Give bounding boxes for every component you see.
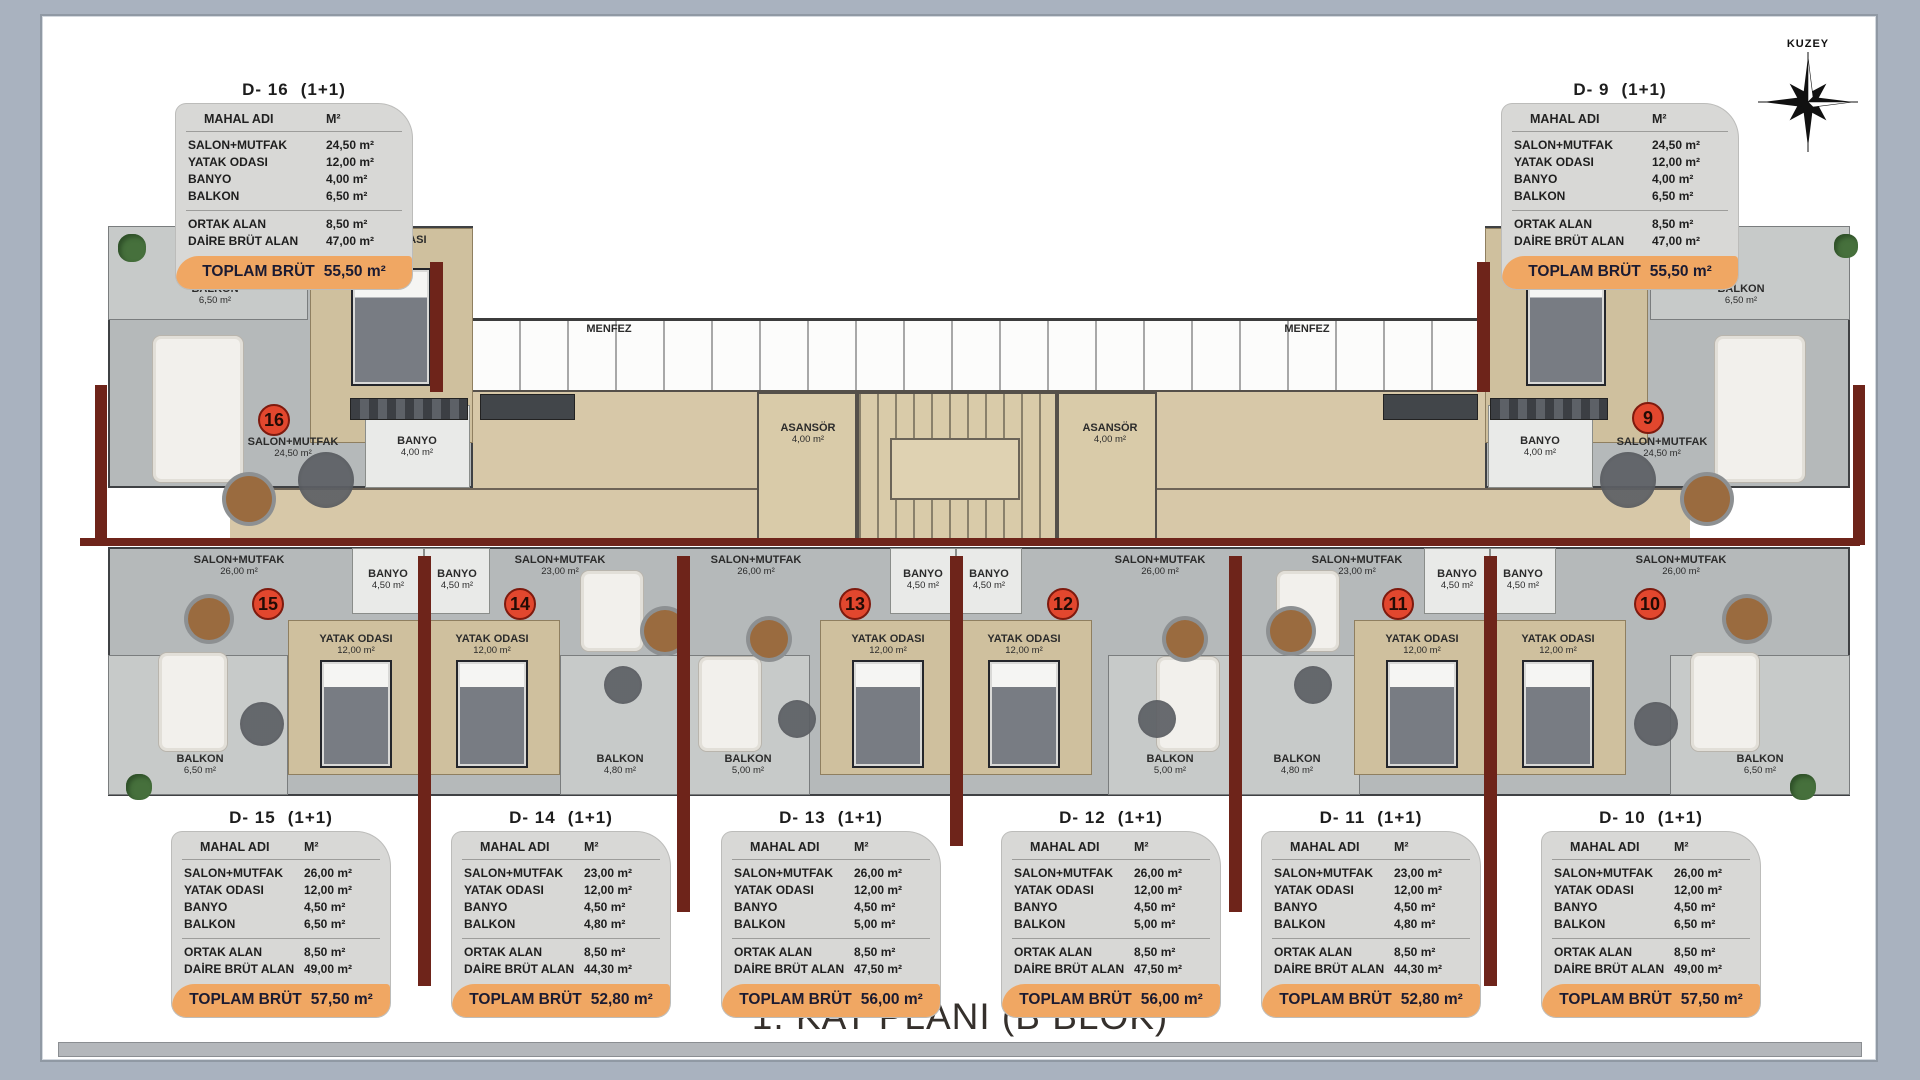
- room-label-salon-mutfak: SALON+MUTFAK26,00 m²: [1636, 555, 1727, 577]
- room-label-yatak-odasi: YATAK ODASI12,00 m²: [455, 634, 528, 656]
- room-row: BANYO4,50 m²: [1002, 899, 1220, 916]
- room-name: YATAK ODASI: [1521, 634, 1594, 646]
- room-row: BANYO4,00 m²: [176, 171, 412, 188]
- room-row: BALKON6,50 m²: [176, 188, 412, 205]
- room-name: BALKON: [1273, 754, 1320, 766]
- bed-icon: [988, 660, 1060, 768]
- unit-card-d12: D- 12(1+1) MAHAL ADIM² SALON+MUTFAK26,00…: [1002, 808, 1220, 1017]
- room-area: 6,50 m²: [176, 766, 223, 776]
- unit-type: (1+1): [288, 808, 333, 827]
- room-row: BALKON4,80 m²: [1262, 916, 1480, 933]
- bed-icon: [1522, 660, 1594, 768]
- unit-number-10: 10: [1634, 588, 1666, 620]
- room-label-yatak-odasi: YATAK ODASI12,00 m²: [319, 634, 392, 656]
- footer-bar: [58, 1042, 1862, 1057]
- summary-row: DAİRE BRÜT ALAN47,50 m²: [722, 961, 940, 978]
- unit-id: D- 10: [1599, 808, 1646, 827]
- room-area: 4,00 m²: [780, 435, 835, 445]
- room-label-balkon: BALKON5,00 m²: [724, 754, 771, 776]
- unit-type: (1+1): [1658, 808, 1703, 827]
- room-area: 6,50 m²: [191, 296, 238, 306]
- structural-wall: [950, 556, 963, 846]
- room-area: 4,50 m²: [1437, 581, 1477, 591]
- unit-number-13: 13: [839, 588, 871, 620]
- room-name: BALKON: [176, 754, 223, 766]
- room-label-balkon: BALKON6,50 m²: [1736, 754, 1783, 776]
- table-icon: [1684, 476, 1730, 522]
- room-name: BALKON: [596, 754, 643, 766]
- unit-card-title: D- 11(1+1): [1262, 808, 1480, 828]
- room-name: BANYO: [397, 436, 437, 448]
- room-row: SALON+MUTFAK24,50 m²: [176, 137, 412, 154]
- room-name: BANYO: [437, 569, 477, 581]
- card-header: MAHAL ADIM²: [722, 832, 940, 857]
- room-name: MENFEZ: [586, 324, 631, 336]
- unit-id: D- 16: [242, 80, 289, 99]
- room-row: SALON+MUTFAK26,00 m²: [172, 865, 390, 882]
- unit-card-d13: D- 13(1+1) MAHAL ADIM² SALON+MUTFAK26,00…: [722, 808, 940, 1017]
- unit-type: (1+1): [1377, 808, 1422, 827]
- total-band: TOPLAM BRÜT52,80 m²: [1262, 984, 1480, 1017]
- room-row: SALON+MUTFAK26,00 m²: [1002, 865, 1220, 882]
- room-area: 4,00 m²: [1082, 435, 1137, 445]
- sofa-icon: [158, 652, 228, 752]
- sofa-icon: [698, 656, 762, 752]
- unit-number-9: 9: [1632, 402, 1664, 434]
- sofa-icon: [152, 335, 244, 483]
- summary-row: ORTAK ALAN8,50 m²: [722, 944, 940, 961]
- room-area: 4,80 m²: [596, 766, 643, 776]
- room-label-banyo: BANYO4,00 m²: [1520, 436, 1560, 458]
- room-name: BANYO: [368, 569, 408, 581]
- unit-id: D- 9: [1573, 80, 1609, 99]
- room-row: BANYO4,50 m²: [722, 899, 940, 916]
- room-label-salon-mutfak: SALON+MUTFAK24,50 m²: [248, 437, 339, 459]
- room-area: 4,50 m²: [969, 581, 1009, 591]
- room-label-salon-mutfak: SALON+MUTFAK26,00 m²: [711, 555, 802, 577]
- room-row: SALON+MUTFAK23,00 m²: [452, 865, 670, 882]
- room-label-balkon: BALKON4,80 m²: [1273, 754, 1320, 776]
- table-icon: [750, 620, 788, 658]
- room-row: SALON+MUTFAK24,50 m²: [1502, 137, 1738, 154]
- wardrobe-icon: [350, 398, 468, 420]
- room-row: YATAK ODASI12,00 m²: [1502, 154, 1738, 171]
- room-label-balkon: BALKON6,50 m²: [176, 754, 223, 776]
- room-name: SALON+MUTFAK: [1312, 555, 1403, 567]
- summary-row: DAİRE BRÜT ALAN49,00 m²: [172, 961, 390, 978]
- room-row: BALKON5,00 m²: [1002, 916, 1220, 933]
- bed-icon: [1386, 660, 1458, 768]
- unit-card-d14: D- 14(1+1) MAHAL ADIM² SALON+MUTFAK23,00…: [452, 808, 670, 1017]
- rug-icon: [1138, 700, 1176, 738]
- table-icon: [1726, 598, 1768, 640]
- unit-card-title: D- 16(1+1): [176, 80, 412, 100]
- room-area: 12,00 m²: [1521, 646, 1594, 656]
- summary-row: ORTAK ALAN8,50 m²: [1002, 944, 1220, 961]
- card-header: MAHAL ADIM²: [1262, 832, 1480, 857]
- room-name: BALKON: [1736, 754, 1783, 766]
- room-row: BANYO4,50 m²: [1262, 899, 1480, 916]
- unit-type: (1+1): [1621, 80, 1666, 99]
- plant-icon: [1790, 774, 1816, 800]
- unit-type: (1+1): [301, 80, 346, 99]
- room-label-salon-mutfak: SALON+MUTFAK23,00 m²: [1312, 555, 1403, 577]
- card-header: MAHAL ADIM²: [452, 832, 670, 857]
- structural-wall: [1853, 385, 1865, 545]
- summary-row: ORTAK ALAN8,50 m²: [1262, 944, 1480, 961]
- room-label-salon-mutfak: SALON+MUTFAK26,00 m²: [1115, 555, 1206, 577]
- summary-row: DAİRE BRÜT ALAN47,50 m²: [1002, 961, 1220, 978]
- room-label-balkon: BALKON5,00 m²: [1146, 754, 1193, 776]
- room-row: YATAK ODASI12,00 m²: [1262, 882, 1480, 899]
- unit-number-12: 12: [1047, 588, 1079, 620]
- room-label-salon-mutfak: SALON+MUTFAK26,00 m²: [194, 555, 285, 577]
- unit-type: (1+1): [838, 808, 883, 827]
- room-name: YATAK ODASI: [851, 634, 924, 646]
- room-row: YATAK ODASI12,00 m²: [176, 154, 412, 171]
- unit-id: D- 15: [229, 808, 276, 827]
- room-row: BALKON6,50 m²: [172, 916, 390, 933]
- room-area: 26,00 m²: [711, 567, 802, 577]
- room-name: BALKON: [1146, 754, 1193, 766]
- room-name: ASANSÖR: [780, 423, 835, 435]
- room-name: YATAK ODASI: [319, 634, 392, 646]
- unit-card-title: D- 9(1+1): [1502, 80, 1738, 100]
- room-label-salon-mutfak: SALON+MUTFAK23,00 m²: [515, 555, 606, 577]
- room-area: 26,00 m²: [1636, 567, 1727, 577]
- room-name: SALON+MUTFAK: [194, 555, 285, 567]
- room-label-banyo: BANYO4,50 m²: [1503, 569, 1543, 591]
- unit-id: D- 11: [1320, 808, 1366, 827]
- room-row: BALKON5,00 m²: [722, 916, 940, 933]
- total-band: TOPLAM BRÜT55,50 m²: [176, 256, 412, 289]
- room-row: SALON+MUTFAK23,00 m²: [1262, 865, 1480, 882]
- unit-type: (1+1): [568, 808, 613, 827]
- room-area: 4,50 m²: [903, 581, 943, 591]
- summary-row: ORTAK ALAN8,50 m²: [1542, 944, 1760, 961]
- room-label-asans-r: ASANSÖR4,00 m²: [780, 423, 835, 445]
- room-name: YATAK ODASI: [987, 634, 1060, 646]
- unit-card-d16: D- 16(1+1) MAHAL ADIM² SALON+MUTFAK24,50…: [176, 80, 412, 289]
- plant-icon: [118, 234, 146, 262]
- bed-icon: [456, 660, 528, 768]
- compass-north-label: KUZEY: [1752, 38, 1864, 50]
- summary-row: DAİRE BRÜT ALAN44,30 m²: [1262, 961, 1480, 978]
- room-area: 6,50 m²: [1717, 296, 1764, 306]
- structural-wall: [430, 262, 443, 392]
- room-name: YATAK ODASI: [455, 634, 528, 646]
- room-label-balkon: BALKON4,80 m²: [596, 754, 643, 776]
- plant-icon: [126, 774, 152, 800]
- unit-number-15: 15: [252, 588, 284, 620]
- unit-number-11: 11: [1382, 588, 1414, 620]
- room-name: SALON+MUTFAK: [515, 555, 606, 567]
- room-area: 12,00 m²: [319, 646, 392, 656]
- table-icon: [1270, 610, 1312, 652]
- wardrobe-icon: [1490, 398, 1608, 420]
- rug-icon: [1600, 452, 1656, 508]
- room-row: BANYO4,50 m²: [452, 899, 670, 916]
- total-band: TOPLAM BRÜT57,50 m²: [172, 984, 390, 1017]
- room-label-yatak-odasi: YATAK ODASI12,00 m²: [987, 634, 1060, 656]
- room-row: YATAK ODASI12,00 m²: [722, 882, 940, 899]
- structural-wall: [1477, 262, 1490, 392]
- sofa-icon: [580, 570, 644, 652]
- room-row: BANYO4,00 m²: [1502, 171, 1738, 188]
- card-header: MAHAL ADIM²: [1002, 832, 1220, 857]
- summary-row: DAİRE BRÜT ALAN49,00 m²: [1542, 961, 1760, 978]
- card-header: MAHAL ADIM²: [1502, 104, 1738, 129]
- room-area: 12,00 m²: [1385, 646, 1458, 656]
- rug-icon: [604, 666, 642, 704]
- room-row: BALKON6,50 m²: [1542, 916, 1760, 933]
- unit-card-title: D- 15(1+1): [172, 808, 390, 828]
- total-band: TOPLAM BRÜT56,00 m²: [722, 984, 940, 1017]
- plant-icon: [1834, 234, 1858, 258]
- room-name: BANYO: [903, 569, 943, 581]
- room-label-banyo: BANYO4,50 m²: [903, 569, 943, 591]
- room-area: 26,00 m²: [1115, 567, 1206, 577]
- bed-icon: [852, 660, 924, 768]
- unit-card-d9: D- 9(1+1) MAHAL ADIM² SALON+MUTFAK24,50 …: [1502, 80, 1738, 289]
- room-area: 24,50 m²: [1617, 449, 1708, 459]
- compass-star-icon: [1753, 50, 1863, 154]
- summary-row: ORTAK ALAN8,50 m²: [176, 216, 412, 233]
- room-row: YATAK ODASI12,00 m²: [1002, 882, 1220, 899]
- room-name: SALON+MUTFAK: [248, 437, 339, 449]
- room-area: 5,00 m²: [1146, 766, 1193, 776]
- summary-row: ORTAK ALAN8,50 m²: [452, 944, 670, 961]
- room-name: ASANSÖR: [1082, 423, 1137, 435]
- total-band: TOPLAM BRÜT52,80 m²: [452, 984, 670, 1017]
- elevator-right: [1057, 392, 1157, 543]
- summary-row: DAİRE BRÜT ALAN47,00 m²: [1502, 233, 1738, 250]
- room-area: 4,50 m²: [368, 581, 408, 591]
- unit-number-14: 14: [504, 588, 536, 620]
- room-area: 23,00 m²: [1312, 567, 1403, 577]
- room-label-banyo: BANYO4,50 m²: [437, 569, 477, 591]
- room-row: BANYO4,50 m²: [1542, 899, 1760, 916]
- room-label-menfez: MENFEZ: [1284, 324, 1329, 336]
- summary-row: DAİRE BRÜT ALAN47,00 m²: [176, 233, 412, 250]
- room-area: 12,00 m²: [851, 646, 924, 656]
- structural-wall: [418, 556, 431, 986]
- room-label-yatak-odasi: YATAK ODASI12,00 m²: [1385, 634, 1458, 656]
- sofa-icon: [1714, 335, 1806, 483]
- card-header: MAHAL ADIM²: [172, 832, 390, 857]
- room-name: BANYO: [1520, 436, 1560, 448]
- unit-card-d11: D- 11(1+1) MAHAL ADIM² SALON+MUTFAK23,00…: [1262, 808, 1480, 1017]
- rug-icon: [1294, 666, 1332, 704]
- summary-row: ORTAK ALAN8,50 m²: [172, 944, 390, 961]
- room-label-yatak-odasi: YATAK ODASI12,00 m²: [851, 634, 924, 656]
- structural-wall: [80, 538, 1860, 546]
- unit-number-16: 16: [258, 404, 290, 436]
- room-label-banyo: BANYO4,00 m²: [397, 436, 437, 458]
- room-name: MENFEZ: [1284, 324, 1329, 336]
- room-row: BANYO4,50 m²: [172, 899, 390, 916]
- room-area: 4,50 m²: [437, 581, 477, 591]
- table-icon: [188, 598, 230, 640]
- room-name: BANYO: [1437, 569, 1477, 581]
- unit-card-title: D- 13(1+1): [722, 808, 940, 828]
- table-icon: [1166, 620, 1204, 658]
- room-row: SALON+MUTFAK26,00 m²: [722, 865, 940, 882]
- card-header: MAHAL ADIM²: [176, 104, 412, 129]
- table-icon: [226, 476, 272, 522]
- counter-icon: [1383, 394, 1478, 420]
- unit-id: D- 14: [509, 808, 556, 827]
- unit-type: (1+1): [1118, 808, 1163, 827]
- room-label-menfez: MENFEZ: [586, 324, 631, 336]
- rug-icon: [778, 700, 816, 738]
- structural-wall: [1484, 556, 1497, 986]
- room-label-salon-mutfak: SALON+MUTFAK24,50 m²: [1617, 437, 1708, 459]
- rug-icon: [1634, 702, 1678, 746]
- room-area: 4,80 m²: [1273, 766, 1320, 776]
- room-area: 26,00 m²: [194, 567, 285, 577]
- room-name: BANYO: [1503, 569, 1543, 581]
- room-label-banyo: BANYO4,50 m²: [1437, 569, 1477, 591]
- structural-wall: [1229, 556, 1242, 912]
- total-band: TOPLAM BRÜT56,00 m²: [1002, 984, 1220, 1017]
- unit-card-d15: D- 15(1+1) MAHAL ADIM² SALON+MUTFAK26,00…: [172, 808, 390, 1017]
- card-header: MAHAL ADIM²: [1542, 832, 1760, 857]
- room-label-banyo: BANYO4,50 m²: [969, 569, 1009, 591]
- room-area: 24,50 m²: [248, 449, 339, 459]
- unit-card-title: D- 14(1+1): [452, 808, 670, 828]
- room-area: 12,00 m²: [987, 646, 1060, 656]
- room-area: 5,00 m²: [724, 766, 771, 776]
- room-row: YATAK ODASI12,00 m²: [1542, 882, 1760, 899]
- room-name: SALON+MUTFAK: [711, 555, 802, 567]
- room-area: 23,00 m²: [515, 567, 606, 577]
- structural-wall: [95, 385, 107, 545]
- unit-card-title: D- 10(1+1): [1542, 808, 1760, 828]
- room-label-asans-r: ASANSÖR4,00 m²: [1082, 423, 1137, 445]
- room-name: BALKON: [724, 754, 771, 766]
- summary-row: ORTAK ALAN8,50 m²: [1502, 216, 1738, 233]
- room-row: BALKON6,50 m²: [1502, 188, 1738, 205]
- counter-icon: [480, 394, 575, 420]
- room-name: YATAK ODASI: [1385, 634, 1458, 646]
- unit-id: D- 13: [779, 808, 826, 827]
- bed-icon: [320, 660, 392, 768]
- compass-rose: KUZEY: [1752, 38, 1864, 158]
- room-label-banyo: BANYO4,50 m²: [368, 569, 408, 591]
- unit-id: D- 12: [1059, 808, 1106, 827]
- total-band: TOPLAM BRÜT57,50 m²: [1542, 984, 1760, 1017]
- room-area: 4,00 m²: [1520, 448, 1560, 458]
- total-band: TOPLAM BRÜT55,50 m²: [1502, 256, 1738, 289]
- room-row: SALON+MUTFAK26,00 m²: [1542, 865, 1760, 882]
- room-name: BANYO: [969, 569, 1009, 581]
- room-row: BALKON4,80 m²: [452, 916, 670, 933]
- rug-icon: [240, 702, 284, 746]
- rug-icon: [298, 452, 354, 508]
- room-row: YATAK ODASI12,00 m²: [452, 882, 670, 899]
- unit-card-title: D- 12(1+1): [1002, 808, 1220, 828]
- room-name: SALON+MUTFAK: [1115, 555, 1206, 567]
- room-label-yatak-odasi: YATAK ODASI12,00 m²: [1521, 634, 1594, 656]
- unit-card-d10: D- 10(1+1) MAHAL ADIM² SALON+MUTFAK26,00…: [1542, 808, 1760, 1017]
- room-area: 4,00 m²: [397, 448, 437, 458]
- stair-landing: [890, 438, 1020, 500]
- structural-wall: [677, 556, 690, 912]
- room-name: SALON+MUTFAK: [1617, 437, 1708, 449]
- room-area: 6,50 m²: [1736, 766, 1783, 776]
- sofa-icon: [1690, 652, 1760, 752]
- elevator-left: [757, 392, 857, 543]
- room-row: YATAK ODASI12,00 m²: [172, 882, 390, 899]
- summary-row: DAİRE BRÜT ALAN44,30 m²: [452, 961, 670, 978]
- room-area: 12,00 m²: [455, 646, 528, 656]
- room-name: SALON+MUTFAK: [1636, 555, 1727, 567]
- room-area: 4,50 m²: [1503, 581, 1543, 591]
